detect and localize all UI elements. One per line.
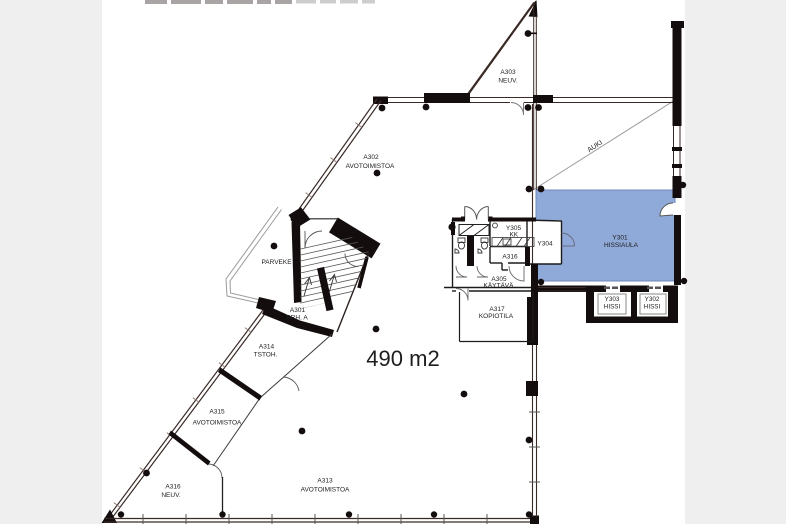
svg-text:Y302: Y302 (645, 296, 660, 303)
svg-text:A313: A313 (317, 478, 333, 485)
svg-text:KK: KK (509, 232, 518, 239)
svg-text:KOPIOTILA: KOPIOTILA (479, 313, 514, 320)
svg-text:HISSI: HISSI (644, 304, 661, 311)
svg-text:NEUV.: NEUV. (498, 78, 517, 85)
svg-text:A302: A302 (363, 154, 379, 161)
svg-text:A315: A315 (209, 409, 225, 416)
svg-text:A314: A314 (259, 344, 275, 351)
svg-text:Y304: Y304 (537, 241, 553, 248)
svg-text:HISSI: HISSI (604, 304, 621, 311)
svg-text:Y303: Y303 (605, 296, 620, 303)
svg-text:KÄYTÄVÄ: KÄYTÄVÄ (484, 282, 515, 290)
svg-text:AVOTOIMISTOA: AVOTOIMISTOA (193, 420, 242, 427)
svg-text:TSTOH.: TSTOH. (254, 352, 278, 359)
svg-text:AVOTOIMISTOA: AVOTOIMISTOA (301, 487, 350, 494)
svg-text:A301: A301 (290, 307, 306, 314)
svg-text:A303: A303 (500, 69, 516, 76)
svg-text:PARVEKE: PARVEKE (261, 259, 292, 266)
svg-text:HISSIAULA: HISSIAULA (604, 242, 639, 249)
svg-text:Y301: Y301 (612, 235, 628, 242)
svg-text:AVOTOIMISTOA: AVOTOIMISTOA (346, 163, 395, 170)
svg-text:A316: A316 (165, 484, 181, 491)
svg-text:A317: A317 (489, 306, 505, 313)
svg-text:PRH. A: PRH. A (286, 315, 308, 322)
svg-text:490 m2: 490 m2 (366, 346, 439, 371)
svg-text:A316: A316 (502, 254, 518, 261)
svg-text:NEUV.: NEUV. (161, 492, 180, 499)
